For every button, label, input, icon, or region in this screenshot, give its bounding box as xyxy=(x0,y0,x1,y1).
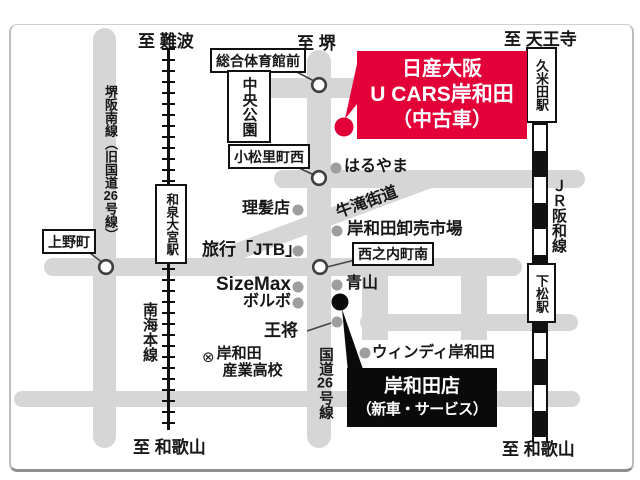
road-label-part: 号線） xyxy=(103,202,118,241)
edge-label-to-wakayama-left: 至 和歌山 xyxy=(133,433,206,458)
branch-name-line1: 岸和田店 xyxy=(384,375,460,400)
edge-label-to-tennoji: 至 天王寺 xyxy=(504,25,577,50)
railway-label-nankai: 南海本線 xyxy=(142,302,157,362)
school-icon: ⊗ xyxy=(202,350,215,365)
poi-school-kishiwada-sangyo: ⊗ 岸和田 産業高校 xyxy=(202,346,283,379)
road-label-part: 26 xyxy=(103,189,118,202)
road-label-part: 号線 xyxy=(317,391,333,420)
junction-label-nishinouchi-cho-minami: 西之内町南 xyxy=(352,242,434,266)
road-label-sakai-hannan: 堺阪南線（旧国道26号線） xyxy=(91,85,117,241)
poi-label-volvo: ボルボ xyxy=(243,294,291,311)
poi-label-jtb: 旅行「JTB」 xyxy=(202,241,302,259)
station-box-kumeda: 久米田駅 xyxy=(526,47,557,123)
station-box-izumi-omiya: 和泉大宮駅 xyxy=(155,184,187,264)
dealer-title-box: 日産大阪 U CARS岸和田 （中古車） xyxy=(357,51,527,139)
label-chuo-koen: 中央公園 xyxy=(227,70,271,143)
junction-label-text: 総合体育館前 xyxy=(216,54,300,68)
poi-label-ohsho: 王将 xyxy=(264,322,298,340)
junction-label-text: 上野町 xyxy=(48,235,90,249)
dealer-access-map: 堺阪南線（旧国道26号線） 国道26号線 牛滝街道 南海本線 ＪＲ阪和線 久米田… xyxy=(0,0,640,480)
junction-label-text: 小松里町西 xyxy=(234,150,304,164)
poi-label-sizemax: SizeMax xyxy=(216,275,291,295)
station-name: 下松駅 xyxy=(535,274,548,313)
road-label-route26: 国道26号線 xyxy=(306,347,332,420)
road-label-part: 堺阪南線（旧国道 xyxy=(103,85,118,189)
road-label-part: 26 xyxy=(317,376,333,391)
school-name: 岸和田 産業高校 xyxy=(217,346,283,379)
school-name-line2: 産業高校 xyxy=(223,363,283,380)
junction-label-text: 西之内町南 xyxy=(358,247,428,261)
station-box-shimomatsu: 下松駅 xyxy=(527,263,556,323)
road-label-part: 国道 xyxy=(317,347,333,376)
branch-name-line2: （新車・サービス） xyxy=(357,400,488,420)
poi-label-oroshiuri-ichiba: 岸和田卸売市場 xyxy=(347,221,463,238)
road-side-street-2 xyxy=(461,263,487,340)
edge-label-to-namba: 至 難波 xyxy=(138,27,194,52)
junction-label-ueno-cho: 上野町 xyxy=(42,229,96,254)
school-name-line1: 岸和田 xyxy=(217,346,283,363)
branch-title-box: 岸和田店 （新車・サービス） xyxy=(347,368,497,427)
poi-label-rihatsuten: 理髪店 xyxy=(242,201,290,218)
station-name: 和泉大宮駅 xyxy=(165,193,178,256)
station-name: 久米田駅 xyxy=(535,59,548,111)
junction-label-text: 中央公園 xyxy=(242,77,257,137)
edge-label-to-wakayama-right: 至 和歌山 xyxy=(502,435,575,460)
dealer-name-line1: 日産大阪 xyxy=(402,57,482,82)
dealer-name-line3: （中古車） xyxy=(392,108,492,133)
edge-label-to-sakai: 至 堺 xyxy=(297,29,336,54)
poi-label-aoyama: 青山 xyxy=(346,276,378,293)
poi-label-haruyama: はるやま xyxy=(344,159,408,176)
poi-label-windy-kishiwada: ウィンディ岸和田 xyxy=(372,345,495,361)
dealer-name-line2: U CARS岸和田 xyxy=(370,82,514,108)
railway-label-jr-hanwa: ＪＲ阪和線 xyxy=(551,178,566,253)
junction-label-komatsuri-cho-nishi: 小松里町西 xyxy=(228,144,310,169)
